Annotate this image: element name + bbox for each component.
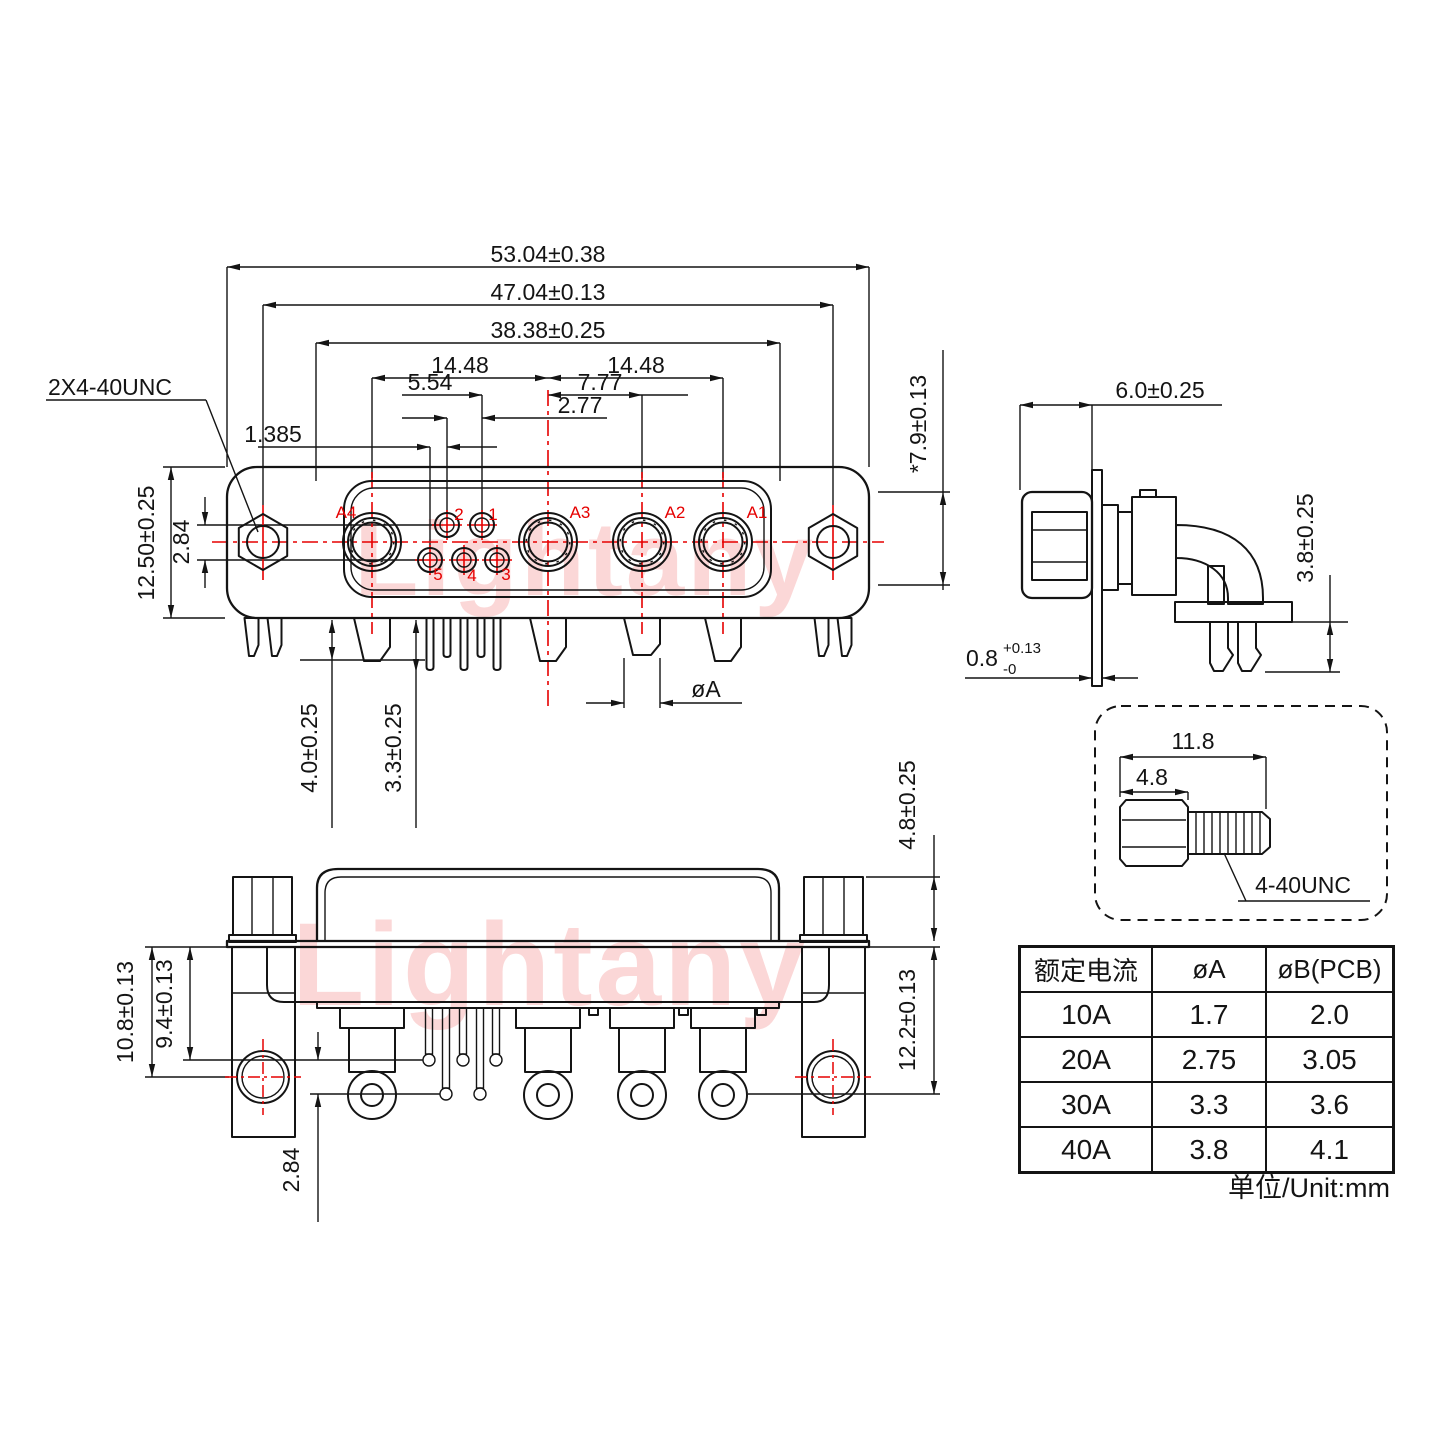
dim-shell-width: 38.38±0.25 — [491, 317, 606, 343]
dim-screw-length: 11.8 — [1171, 728, 1214, 754]
dim-flange-tol-plus: +0.13 — [1003, 640, 1041, 657]
unit-note: 单位/Unit:mm — [1150, 1166, 1390, 1205]
label-p5: 5 — [433, 565, 442, 584]
spec-cell: 3.05 — [1266, 1037, 1394, 1082]
dim-screw-span: 47.04±0.13 — [491, 279, 606, 305]
spec-header-current: 额定电流 — [1020, 947, 1153, 993]
dim-standoff-length: 4.0±0.25 — [296, 703, 322, 792]
dim-small-pitch: 2.77 — [558, 392, 603, 418]
side-hex-facets — [1032, 530, 1087, 562]
side-view: 6.0±0.25 *7.9±0.13 3.8±0.25 0.8 +0.13 -0 — [878, 350, 1348, 686]
dim-overall-width: 53.04±0.38 — [491, 241, 606, 267]
label-a2: A2 — [665, 503, 686, 522]
dim-flange-tol-minus: -0 — [1003, 661, 1016, 678]
side-top-tab — [1140, 490, 1156, 497]
side-bent-bracket — [1176, 525, 1263, 604]
dim-overall-height: 12.50±0.25 — [133, 486, 159, 601]
label-p1: 1 — [488, 505, 497, 524]
bottom-hex-right-facets — [823, 877, 844, 935]
dim-power-pin-dia: øA — [691, 676, 721, 702]
spec-header-dia-b: øB(PCB) — [1266, 947, 1394, 993]
spec-row-10a: 10A 1.7 2.0 — [1020, 992, 1394, 1037]
bottom-hex-left-facets — [252, 877, 273, 935]
dim-small-pin-span: 5.54 — [408, 369, 453, 395]
bracket-left-crosshair — [225, 1039, 301, 1115]
spec-table-header-row: 额定电流 øA øB(PCB) — [1020, 947, 1394, 993]
screw-shaft — [1188, 812, 1270, 854]
watermarks: Lightany Lightany — [292, 501, 816, 1031]
side-flange — [1092, 470, 1102, 686]
dim-half-pitch: 1.385 — [244, 421, 302, 447]
dim-row-offset-front: 2.84 — [168, 519, 194, 564]
dim-screw-head: 4.8 — [1136, 764, 1168, 790]
spec-cell: 2.75 — [1152, 1037, 1266, 1082]
drawing-canvas: Lightany Lightany 53.04±0.38 47.04±0.13 … — [0, 0, 1440, 1440]
screw-threads — [1196, 813, 1260, 853]
spec-cell: 3.6 — [1266, 1082, 1394, 1127]
side-insulator-step1 — [1102, 505, 1118, 590]
bottom-centerlines — [225, 1039, 871, 1115]
side-dim-arrows — [940, 402, 1333, 681]
thread-callout: 2X4-40UNC — [48, 374, 172, 400]
spec-table: 额定电流 øA øB(PCB) 10A 1.7 2.0 20A 2.75 3.0… — [1018, 945, 1395, 1174]
spec-cell: 40A — [1020, 1127, 1153, 1173]
screw-detail: 11.8 4.8 4-40UNC — [1095, 706, 1387, 920]
spec-cell: 10A — [1020, 992, 1153, 1037]
label-p4: 4 — [467, 566, 476, 585]
spec-cell: 1.7 — [1152, 992, 1266, 1037]
watermark-bottom: Lightany — [292, 899, 808, 1031]
screw-body — [1120, 800, 1270, 866]
dim-row-offset-bottom: 2.84 — [278, 1147, 304, 1192]
screw-thread-spec: 4-40UNC — [1255, 872, 1351, 898]
dim-pin-row-upper: 9.4±0.13 — [151, 959, 177, 1048]
dim-bracket-depth: 6.0±0.25 — [1115, 377, 1204, 403]
side-dim-lines — [878, 350, 1340, 678]
side-insulator-block — [1132, 497, 1176, 595]
spec-cell: 3.3 — [1152, 1082, 1266, 1127]
screw-head-facets — [1122, 820, 1186, 847]
spec-cell: 30A — [1020, 1082, 1153, 1127]
spec-cell: 2.0 — [1266, 992, 1394, 1037]
spec-header-dia-a: øA — [1152, 947, 1266, 993]
spec-row-30a: 30A 3.3 3.6 — [1020, 1082, 1394, 1127]
side-insulator-step2 — [1118, 512, 1132, 584]
label-a1: A1 — [747, 503, 768, 522]
label-a3: A3 — [570, 503, 591, 522]
dim-pin-row-lower: 12.2±0.13 — [894, 969, 920, 1071]
bracket-right-crosshair — [795, 1039, 871, 1115]
dim-clip-length: 3.8±0.25 — [1292, 493, 1318, 582]
label-p3: 3 — [501, 565, 510, 584]
signal-pin-tails — [427, 618, 501, 670]
spec-cell: 20A — [1020, 1037, 1153, 1082]
side-snap-clips — [1210, 622, 1261, 671]
side-hex-nut — [1032, 512, 1087, 580]
drawing-svg: Lightany Lightany 53.04±0.38 47.04±0.13 … — [0, 0, 1440, 1440]
dim-hole-offset: 10.8±0.13 — [112, 961, 138, 1063]
dim-flange-thickness: 0.8 — [966, 645, 998, 671]
screw-head — [1120, 800, 1188, 866]
label-a4: A4 — [336, 503, 357, 522]
dim-signal-pin-length: 3.3±0.25 — [380, 703, 406, 792]
dim-half-height: *7.9±0.13 — [905, 375, 931, 473]
bottom-hex-left — [233, 877, 292, 935]
bottom-hex-right — [804, 877, 863, 935]
spec-row-20a: 20A 2.75 3.05 — [1020, 1037, 1394, 1082]
dim-standoff-height: 4.8±0.25 — [894, 760, 920, 849]
label-p2: 2 — [454, 505, 463, 524]
